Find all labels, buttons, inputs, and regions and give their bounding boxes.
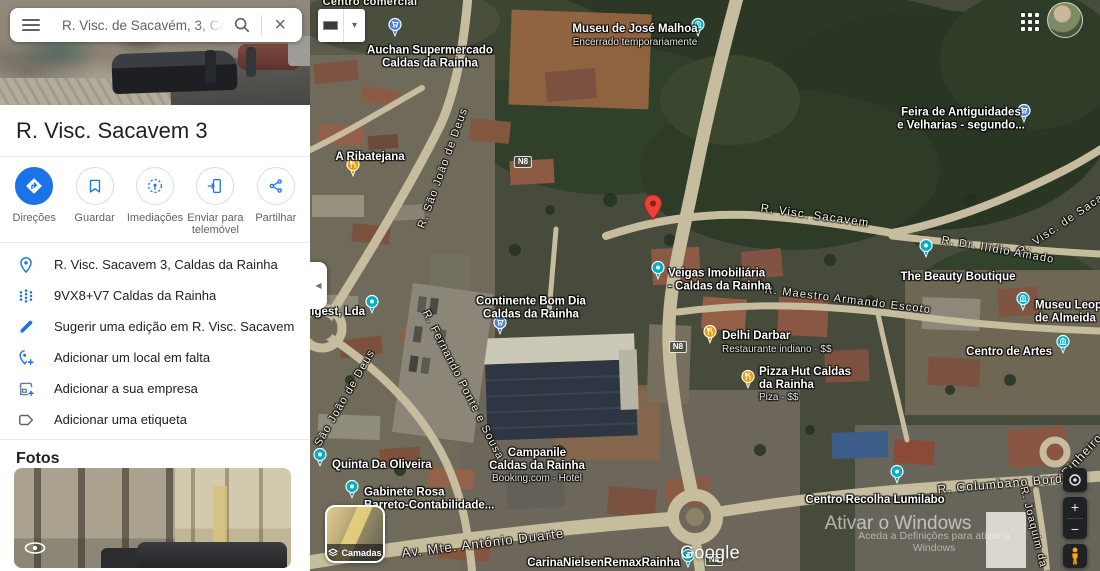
plus-code-row[interactable]: 9VX8+V7 Caldas da Rainha	[0, 280, 310, 311]
photo-balcony	[213, 486, 227, 546]
directions-button[interactable]: Direções	[4, 167, 64, 236]
add-place-row[interactable]: Adicionar um local em falta	[0, 342, 310, 373]
poi-label-veigas-imobiliaria[interactable]: Veigas Imobiliária- Caldas da Rainha	[668, 268, 771, 293]
pencil-icon	[16, 317, 36, 337]
search-icon[interactable]	[233, 16, 251, 34]
suggest-edit-text: Sugerir uma edição em R. Visc. Sacavem 3	[54, 319, 294, 334]
poi-label-delhi-darbar[interactable]: Delhi DarbarRestaurante indiano · $$	[722, 330, 832, 356]
photos-heading: Fotos	[16, 450, 294, 468]
poi-label-centro-de-artes[interactable]: Centro de Artes	[966, 346, 1052, 359]
poi-pin-delhi-darbar[interactable]	[703, 325, 718, 350]
map-type-thumbnail	[318, 9, 344, 42]
poi-pin-veigas-imobiliaria[interactable]	[651, 261, 666, 286]
destination-marker[interactable]	[643, 194, 663, 226]
bookmark-icon	[76, 167, 114, 205]
tag-icon	[16, 410, 36, 430]
address-text: R. Visc. Sacavem 3, Caldas da Rainha	[54, 257, 278, 272]
poi-label-museu-leopoldo[interactable]: Museu Leopoldode Almeida	[1035, 300, 1100, 325]
add-business-text: Adicionar a sua empresa	[54, 381, 198, 396]
layers-button[interactable]: Camadas	[325, 505, 385, 563]
add-place-icon	[16, 348, 36, 368]
place-pin-icon	[16, 255, 36, 275]
zoom-in-button[interactable]: +	[1063, 497, 1087, 518]
account-avatar[interactable]	[1047, 2, 1083, 38]
pegman-button[interactable]	[1063, 544, 1087, 568]
directions-icon	[15, 167, 53, 205]
add-business-row[interactable]: Adicionar a sua empresa	[0, 373, 310, 404]
details-list: R. Visc. Sacavem 3, Caldas da Rainha 9VX…	[0, 243, 310, 439]
poi-pin-museu-leopoldo[interactable]	[1016, 292, 1031, 317]
add-label-text: Adicionar uma etiqueta	[54, 412, 187, 427]
streetview-pedestrian	[205, 50, 216, 83]
suggest-edit-row[interactable]: Sugerir uma edição em R. Visc. Sacavem 3	[0, 311, 310, 342]
search-input[interactable]: R. Visc. de Sacavém, 3, Caldas d	[62, 18, 227, 33]
place-photo[interactable]	[14, 468, 291, 568]
poi-label-a-ribatejana[interactable]: A Ribatejana	[335, 151, 404, 164]
nearby-button[interactable]: Imediações	[125, 167, 185, 236]
poi-pin-pizza-hut[interactable]	[741, 370, 756, 395]
nearby-icon	[136, 167, 174, 205]
layers-label: Camadas	[341, 548, 381, 558]
action-label: Partilhar	[255, 212, 296, 224]
action-label: Enviar para telemóvel	[185, 212, 245, 236]
poi-label-auchan[interactable]: Auchan SupermercadoCaldas da Rainha	[367, 45, 493, 70]
map-type-toggle[interactable]: ▾	[318, 9, 365, 42]
poi-label-the-beauty-boutique[interactable]: The Beauty Boutique	[900, 271, 1015, 284]
google-logo: Google	[680, 543, 740, 564]
layers-strip: Camadas	[327, 544, 383, 561]
search-divider	[261, 15, 262, 35]
action-label: Guardar	[74, 212, 114, 224]
poi-label-gabinete-rosa[interactable]: Gabinete RosaBarreto-Contabilidade...	[364, 487, 494, 512]
close-icon[interactable]: ×	[266, 15, 294, 35]
poi-label-continente-bom-dia[interactable]: Continente Bom DiaCaldas da Rainha	[476, 296, 586, 321]
my-location-icon	[1068, 473, 1082, 487]
menu-button[interactable]	[22, 19, 40, 31]
google-apps-button[interactable]	[1020, 12, 1040, 32]
pegman-icon	[1069, 547, 1081, 565]
streetview-pedestrian	[246, 47, 256, 77]
poi-pin-oligest[interactable]	[365, 295, 380, 320]
share-button[interactable]: Partilhar	[246, 167, 306, 236]
poi-pin-gabinete-rosa[interactable]	[345, 480, 360, 505]
action-label: Imediações	[127, 212, 183, 224]
poi-label-museu-jose-malhoa[interactable]: Museu de José MalhoaEncerrado temporaria…	[572, 23, 697, 49]
poi-label-centro-recolha-lumilabo[interactable]: Centro Recolha Lumilabo	[805, 494, 944, 507]
search-bar: R. Visc. de Sacavém, 3, Caldas d ×	[10, 8, 302, 42]
poi-label-campanile[interactable]: CampanileCaldas da RainhaBooking.com · H…	[489, 447, 585, 486]
map-canvas[interactable]: Centro comercialR. Visc. SacavemR. Visc.…	[310, 0, 1100, 571]
address-row[interactable]: R. Visc. Sacavem 3, Caldas da Rainha	[0, 249, 310, 280]
streetview-car	[111, 50, 237, 94]
photo-car	[137, 542, 287, 568]
add-place-text: Adicionar um local em falta	[54, 350, 210, 365]
poi-pin-quinta-da-oliveira[interactable]	[313, 448, 328, 473]
poi-pin-the-beauty-boutique[interactable]	[919, 239, 934, 264]
poi-pin-centro-de-artes[interactable]	[1056, 335, 1071, 360]
streetview-360-icon	[24, 541, 46, 560]
road-shield: N8	[669, 341, 687, 353]
poi-pin-centro-recolha-lumilabo[interactable]	[890, 465, 905, 490]
chevron-down-icon: ▾	[344, 20, 365, 31]
plus-code-icon	[16, 286, 36, 306]
page-title: R. Visc. Sacavem 3	[16, 118, 294, 144]
storefront-icon	[16, 379, 36, 399]
streetview-thumbnail[interactable]: R. Visc. de Sacavém, 3, Caldas d ×	[0, 0, 310, 105]
share-icon	[257, 167, 295, 205]
poi-label-feira-antiguidades[interactable]: Feira de Antiguidadese Velharias - segun…	[897, 107, 1025, 132]
collapse-panel-button[interactable]: ◀	[310, 262, 327, 309]
add-label-row[interactable]: Adicionar uma etiqueta	[0, 404, 310, 435]
send-to-phone-icon	[196, 167, 234, 205]
plus-code-text: 9VX8+V7 Caldas da Rainha	[54, 288, 216, 303]
send-to-phone-button[interactable]: Enviar para telemóvel	[185, 167, 245, 236]
poi-pin-auchan[interactable]	[388, 18, 403, 43]
layers-icon	[328, 548, 338, 557]
action-label: Direções	[13, 212, 56, 224]
place-header: R. Visc. Sacavem 3	[0, 105, 310, 156]
poi-label-quinta-da-oliveira[interactable]: Quinta Da Oliveira	[332, 459, 432, 472]
poi-label-pizza-hut[interactable]: Pizza Hut Caldasda RainhaPiza · $$	[759, 366, 851, 405]
road-shield: N8	[514, 156, 532, 168]
google-maps-window: R. Visc. de Sacavém, 3, Caldas d × R. Vi…	[0, 0, 1100, 571]
zoom-control: + −	[1063, 497, 1087, 539]
poi-label-carina-nielsen-remax[interactable]: CarinaNielsenRemaxRainha	[527, 557, 680, 570]
zoom-out-button[interactable]: −	[1063, 519, 1087, 540]
divider	[0, 439, 310, 440]
my-location-button[interactable]	[1063, 468, 1087, 492]
place-panel: R. Visc. de Sacavém, 3, Caldas d × R. Vi…	[0, 0, 310, 571]
area-label: Centro comercial	[323, 0, 418, 8]
save-button[interactable]: Guardar	[64, 167, 124, 236]
action-bar: Direções Guardar Imediações Enviar para …	[0, 157, 310, 242]
